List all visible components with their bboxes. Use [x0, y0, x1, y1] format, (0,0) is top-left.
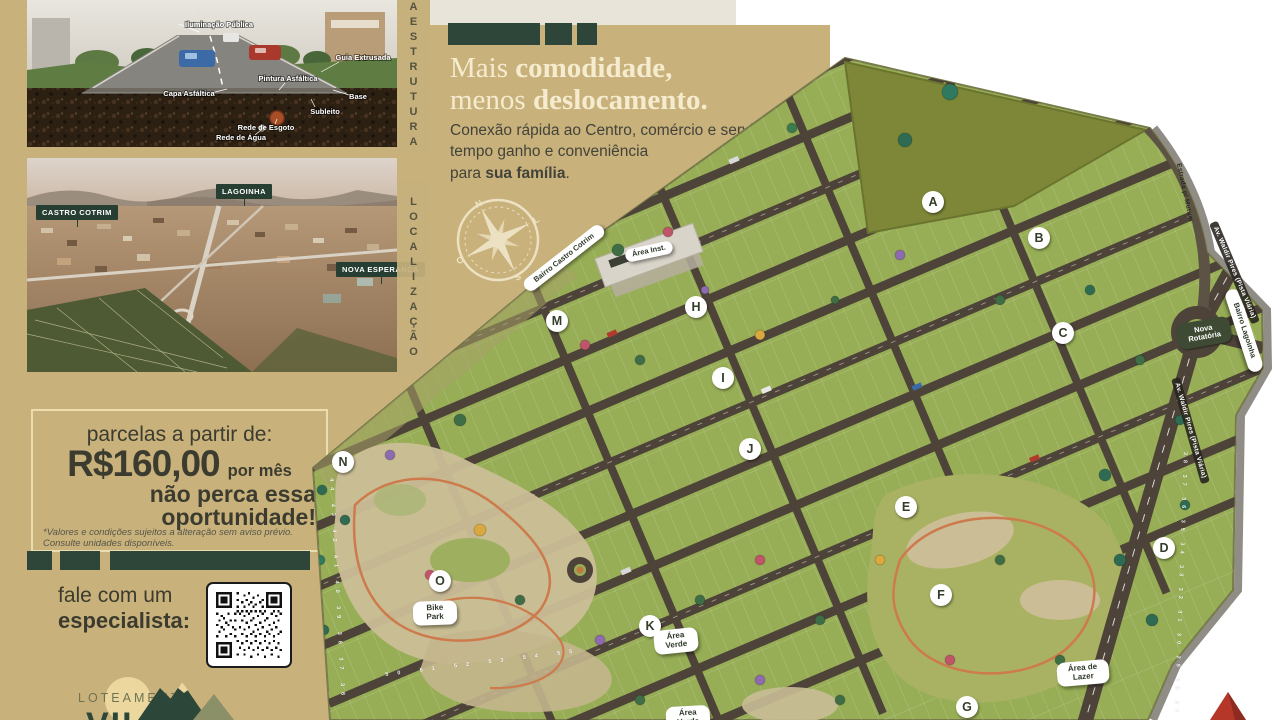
poster-canvas: Iluminação Pública Guia Extrusada Pintur… [0, 0, 1280, 720]
block-marker-b: B [1028, 227, 1050, 249]
block-marker-o: O [429, 570, 451, 592]
pill-bike-park-line2: Park [413, 612, 457, 622]
block-marker-e: E [895, 496, 917, 518]
block-marker-d: D [1153, 537, 1175, 559]
block-marker-h: H [685, 296, 707, 318]
pill-area-verde-2: Área Verde [665, 705, 710, 720]
block-marker-j: J [739, 438, 761, 460]
masterplan-map [0, 0, 1280, 720]
block-marker-n: N [332, 451, 354, 473]
pill-area-verde: Área Verde [653, 627, 699, 655]
pill-bike-park: Bike Park [413, 600, 458, 626]
pill-area-de-lazer: Área de Lazer [1056, 659, 1110, 687]
block-marker-c: C [1052, 322, 1074, 344]
corner-logo-fragment [1210, 692, 1246, 720]
block-marker-i: I [712, 367, 734, 389]
block-marker-m: M [546, 310, 568, 332]
block-marker-f: F [930, 584, 952, 606]
block-marker-g: G [956, 696, 978, 718]
block-marker-a: A [922, 191, 944, 213]
